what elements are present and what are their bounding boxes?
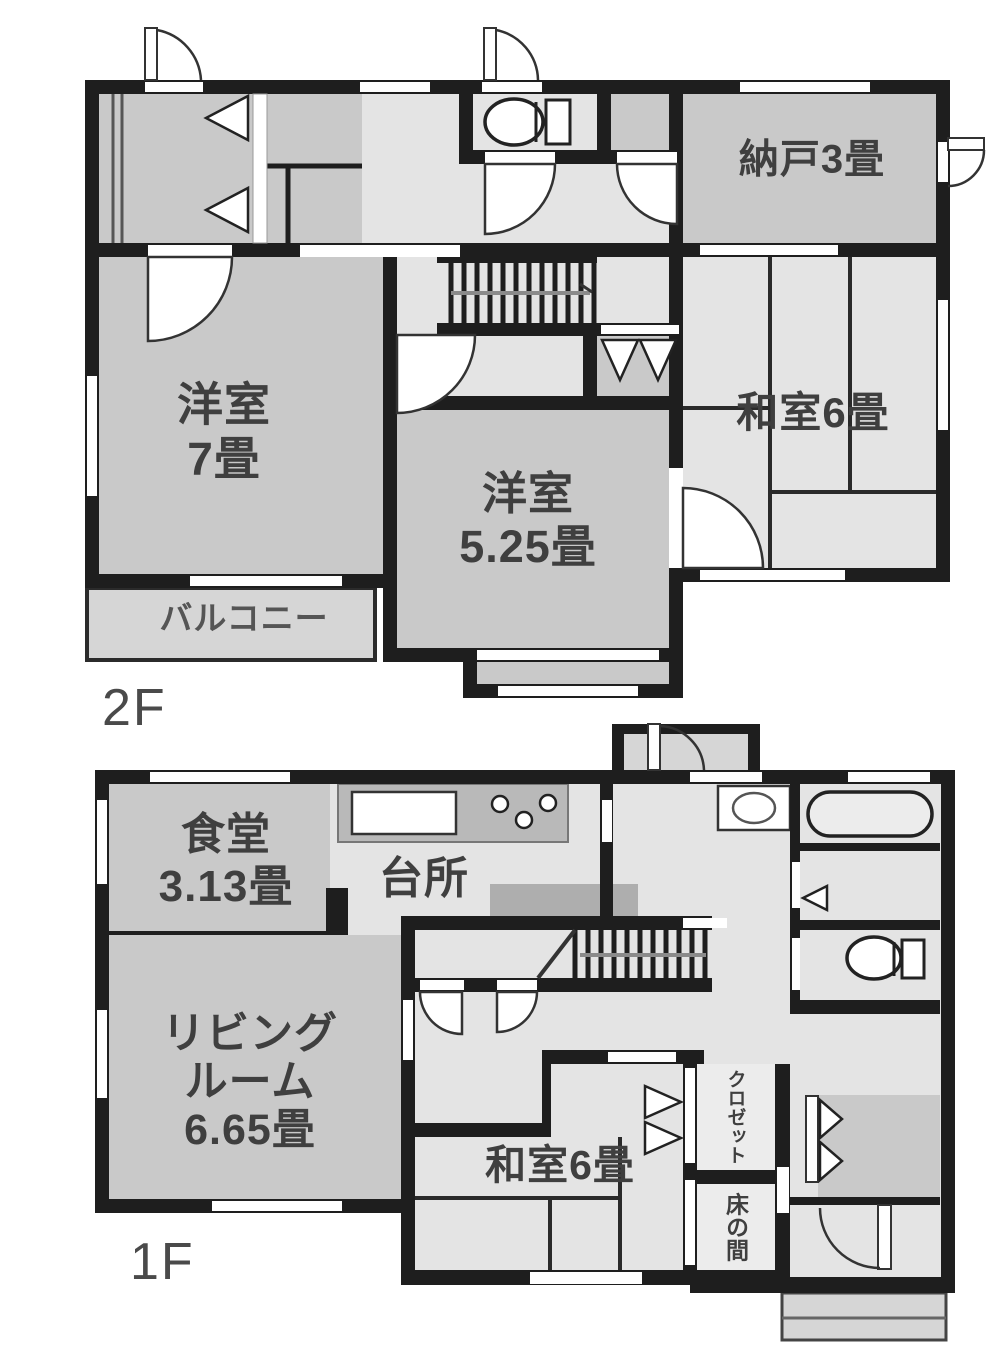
- kitchen-sink: [352, 792, 456, 834]
- room-label-japanese6-2f: 和室6畳: [736, 388, 889, 438]
- floor-label-2f: 2F: [102, 678, 167, 738]
- toilet-icon-2f: [485, 99, 570, 145]
- room-label-western525-line1: 洋室: [459, 467, 597, 520]
- room-label-dining: 食堂 3.13畳: [159, 809, 294, 913]
- room-label-living-line3: 6.65畳: [162, 1106, 338, 1154]
- room-label-western525: 洋室 5.25畳: [459, 467, 597, 573]
- room-label-closet: クロゼット: [726, 1070, 745, 1165]
- toilet-icon-1f: [847, 937, 924, 979]
- kitchen-counter: [338, 784, 568, 842]
- bathtub-icon: [808, 792, 932, 836]
- room-label-tokonoma: 床の間: [724, 1193, 747, 1262]
- room-label-western7-line2: 7畳: [177, 432, 271, 486]
- room-label-balcony: バルコニー: [159, 600, 328, 639]
- 2f-small-closet: [611, 94, 669, 150]
- room-label-living: リビング ルーム 6.65畳: [162, 1010, 338, 1154]
- room-label-nando: 納戸3畳: [739, 136, 885, 183]
- room-label-japanese6-1f: 和室6畳: [485, 1141, 635, 1189]
- floor-2f-plan: [85, 28, 984, 698]
- washbasin-icon: [718, 786, 790, 830]
- room-label-kitchen: 台所: [379, 853, 469, 905]
- room-label-living-line1: リビング: [162, 1010, 338, 1058]
- room-label-dining-line2: 3.13畳: [159, 861, 294, 913]
- floor-label-1f: 1F: [130, 1232, 195, 1292]
- room-label-western7: 洋室 7畳: [177, 378, 271, 487]
- room-label-western7-line1: 洋室: [177, 378, 271, 432]
- floorplan: 納戸3畳 洋室 7畳 洋室 5.25畳 和室6畳 バルコニー 2F 食堂 3.1…: [0, 0, 988, 1364]
- room-label-dining-line1: 食堂: [159, 809, 294, 861]
- 2f-bay-extension: [463, 662, 669, 684]
- room-label-western525-line2: 5.25畳: [459, 520, 597, 573]
- room-label-living-line2: ルーム: [162, 1058, 338, 1106]
- entrance-closet: [818, 1095, 940, 1197]
